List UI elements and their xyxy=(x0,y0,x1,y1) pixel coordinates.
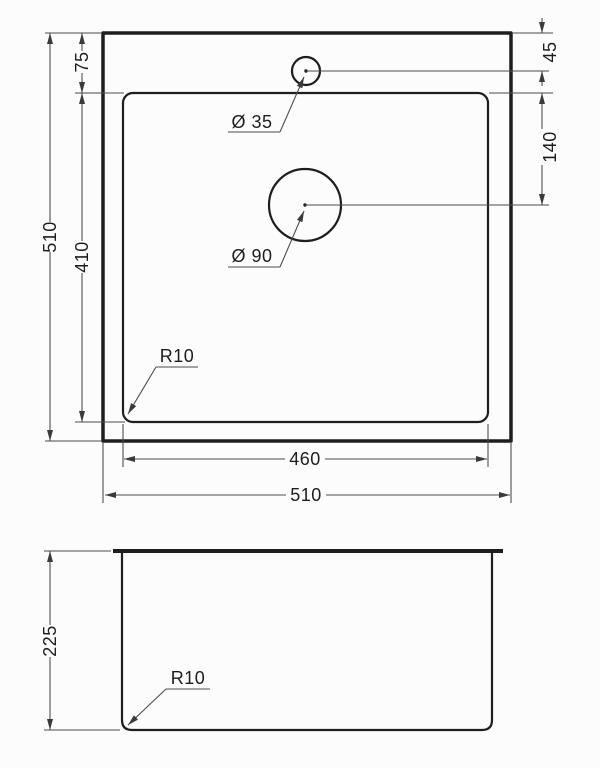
sink-rim-outline xyxy=(103,33,511,441)
drain-hole-diameter-value: Ø 90 xyxy=(231,246,272,266)
dim-rim-top-offset-value: 75 xyxy=(72,51,92,72)
dim-drain-hole-offset: 140 xyxy=(540,93,560,205)
label-corner-radius-side: R10 xyxy=(128,668,210,725)
dim-bowl-height: 410 xyxy=(72,93,92,422)
dim-depth-value: 225 xyxy=(40,625,60,657)
dim-faucet-hole-offset: 45 xyxy=(540,18,560,86)
top-view: 510 75 410 45 140 46 xyxy=(40,18,560,505)
sink-dimension-drawing: 510 75 410 45 140 46 xyxy=(0,0,600,768)
dim-overall-height: 510 xyxy=(40,33,60,441)
side-view: 225 R10 xyxy=(40,551,503,730)
sink-bowl-outline xyxy=(123,93,488,422)
corner-radius-side-value: R10 xyxy=(171,668,206,688)
dim-rim-top-offset: 75 xyxy=(72,33,92,93)
dim-overall-width: 510 xyxy=(105,485,510,505)
dim-depth: 225 xyxy=(40,551,60,730)
bowl-profile-outline xyxy=(122,553,492,730)
extension-lines xyxy=(45,33,553,503)
dim-bowl-width: 460 xyxy=(124,449,487,469)
label-corner-radius-top: R10 xyxy=(128,346,198,414)
dim-overall-width-value: 510 xyxy=(290,485,322,505)
dim-bowl-width-value: 460 xyxy=(289,449,321,469)
faucet-hole-diameter-value: Ø 35 xyxy=(231,112,272,132)
label-faucet-hole-diameter: Ø 35 xyxy=(228,77,304,132)
corner-radius-top-value: R10 xyxy=(160,346,195,366)
dim-faucet-hole-offset-value: 45 xyxy=(540,41,560,62)
dim-bowl-height-value: 410 xyxy=(72,241,92,273)
dim-overall-height-value: 510 xyxy=(40,221,60,253)
dim-drain-hole-offset-value: 140 xyxy=(540,131,560,163)
